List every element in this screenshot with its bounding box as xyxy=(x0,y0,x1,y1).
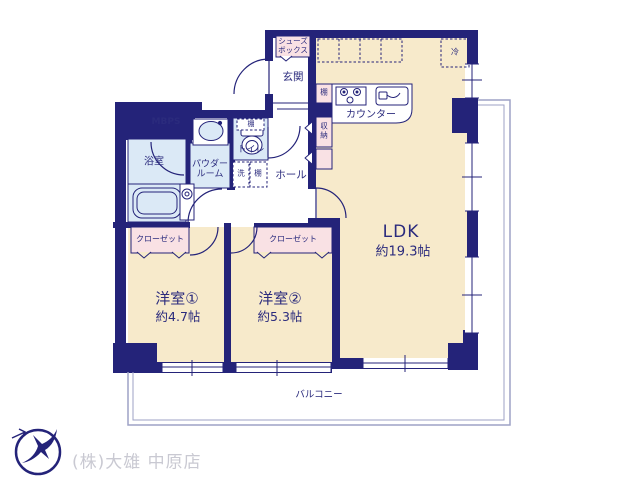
wall-shelf-divider xyxy=(316,103,332,117)
floor-plan-page: シューズ ボックス 玄関 冷 カウンター 棚 収 納 MBPS 浴室 パウダー … xyxy=(0,0,640,480)
window-right-a xyxy=(462,64,482,98)
entrance-label: 玄関 xyxy=(283,71,304,83)
washer-label: 洗 xyxy=(237,170,245,179)
wall-kitchen-left xyxy=(308,38,316,189)
company-name: (株)大雄 中原店 xyxy=(72,448,202,473)
bedroom2-size-label: 約5.3帖 xyxy=(258,310,303,324)
entrance-step xyxy=(273,103,310,109)
hall-label: ホール xyxy=(275,169,307,181)
ldk-label: LDK xyxy=(383,223,420,243)
shoe-box-label: シューズ ボックス xyxy=(278,37,308,54)
closet1-label: クローゼット xyxy=(136,234,184,243)
wall-left xyxy=(115,102,126,372)
sink-tap-icon xyxy=(218,121,221,124)
kitchen-shelf-label: 棚 xyxy=(320,89,328,98)
wall-entrance-left-a xyxy=(265,30,273,62)
window-right-b xyxy=(462,143,482,211)
logo-arrow-icon xyxy=(12,429,25,438)
storage-box-blank xyxy=(316,149,332,169)
storage-label: 収 納 xyxy=(320,122,328,139)
refrigerator-label: 冷 xyxy=(451,47,459,56)
kitchen-sink-icon xyxy=(376,87,408,105)
bathroom-label: 浴室 xyxy=(144,156,164,168)
bedroom1-label: 洋室① xyxy=(155,290,198,307)
toilet-shelf-label: 棚 xyxy=(248,120,255,128)
laundry-shelf-label: 棚 xyxy=(254,170,262,179)
balcony-label: バルコニー xyxy=(295,391,342,402)
closet2-label: クローゼット xyxy=(269,234,317,243)
bathtub-inner-icon xyxy=(137,192,177,214)
mbps-label: MBPS xyxy=(152,117,181,127)
company-logo xyxy=(12,429,60,474)
toilet-door-arc xyxy=(268,126,300,158)
counter-label: カウンター xyxy=(346,109,396,121)
wall-bedroom2-ldk xyxy=(332,223,340,366)
window-right-c xyxy=(462,257,482,333)
wall-entrance-left-b xyxy=(265,93,273,118)
floor-plan-graphic xyxy=(0,0,640,480)
bedroom2-label: 洋室② xyxy=(258,290,301,307)
bedroom1-size-label: 約4.7帖 xyxy=(156,310,201,324)
wall-step-left xyxy=(113,343,157,373)
toilet-label: トイレ xyxy=(237,145,264,155)
wall-between-bedrooms xyxy=(224,223,231,366)
powder-room-label: パウダー ルーム xyxy=(192,160,228,181)
ldk-kitchen-floor xyxy=(315,38,467,223)
wall-right-pillar xyxy=(452,98,478,133)
entrance-door-arc xyxy=(234,59,269,94)
ldk-size-label: 約19.3帖 xyxy=(376,246,431,261)
washer-drum-icon xyxy=(182,189,192,199)
